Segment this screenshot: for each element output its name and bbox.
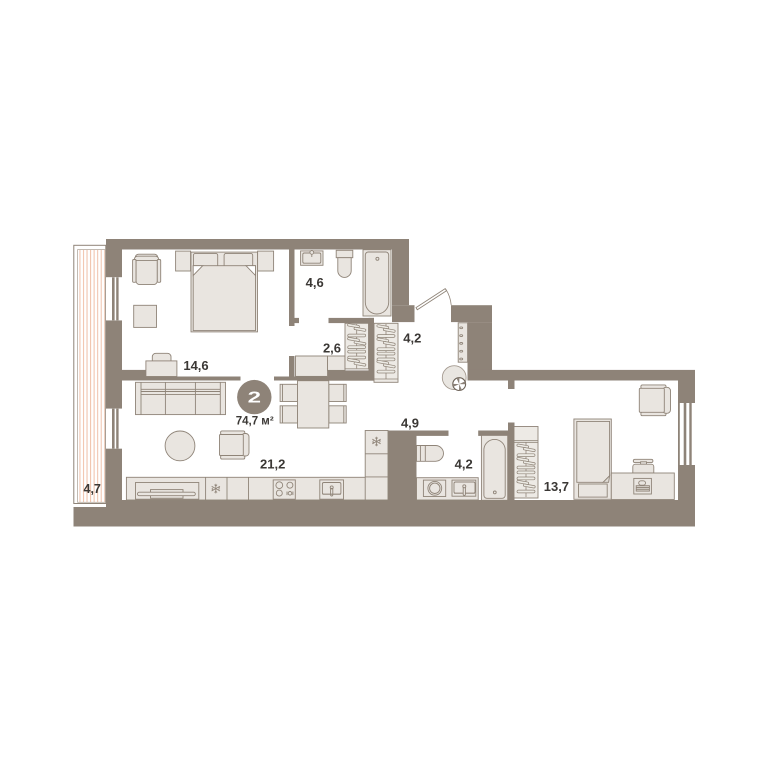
svg-text:4,2: 4,2 bbox=[455, 457, 473, 472]
svg-text:4,6: 4,6 bbox=[306, 275, 324, 290]
svg-text:2: 2 bbox=[248, 390, 262, 407]
svg-text:4,9: 4,9 bbox=[401, 415, 419, 430]
svg-text:4,2: 4,2 bbox=[403, 330, 421, 345]
svg-text:2,6: 2,6 bbox=[323, 341, 341, 356]
svg-text:14,6: 14,6 bbox=[183, 358, 208, 373]
svg-text:74,7 м²: 74,7 м² bbox=[236, 416, 274, 428]
svg-text:21,2: 21,2 bbox=[260, 456, 285, 471]
svg-text:4,7: 4,7 bbox=[84, 482, 101, 496]
svg-text:13,7: 13,7 bbox=[544, 479, 569, 494]
